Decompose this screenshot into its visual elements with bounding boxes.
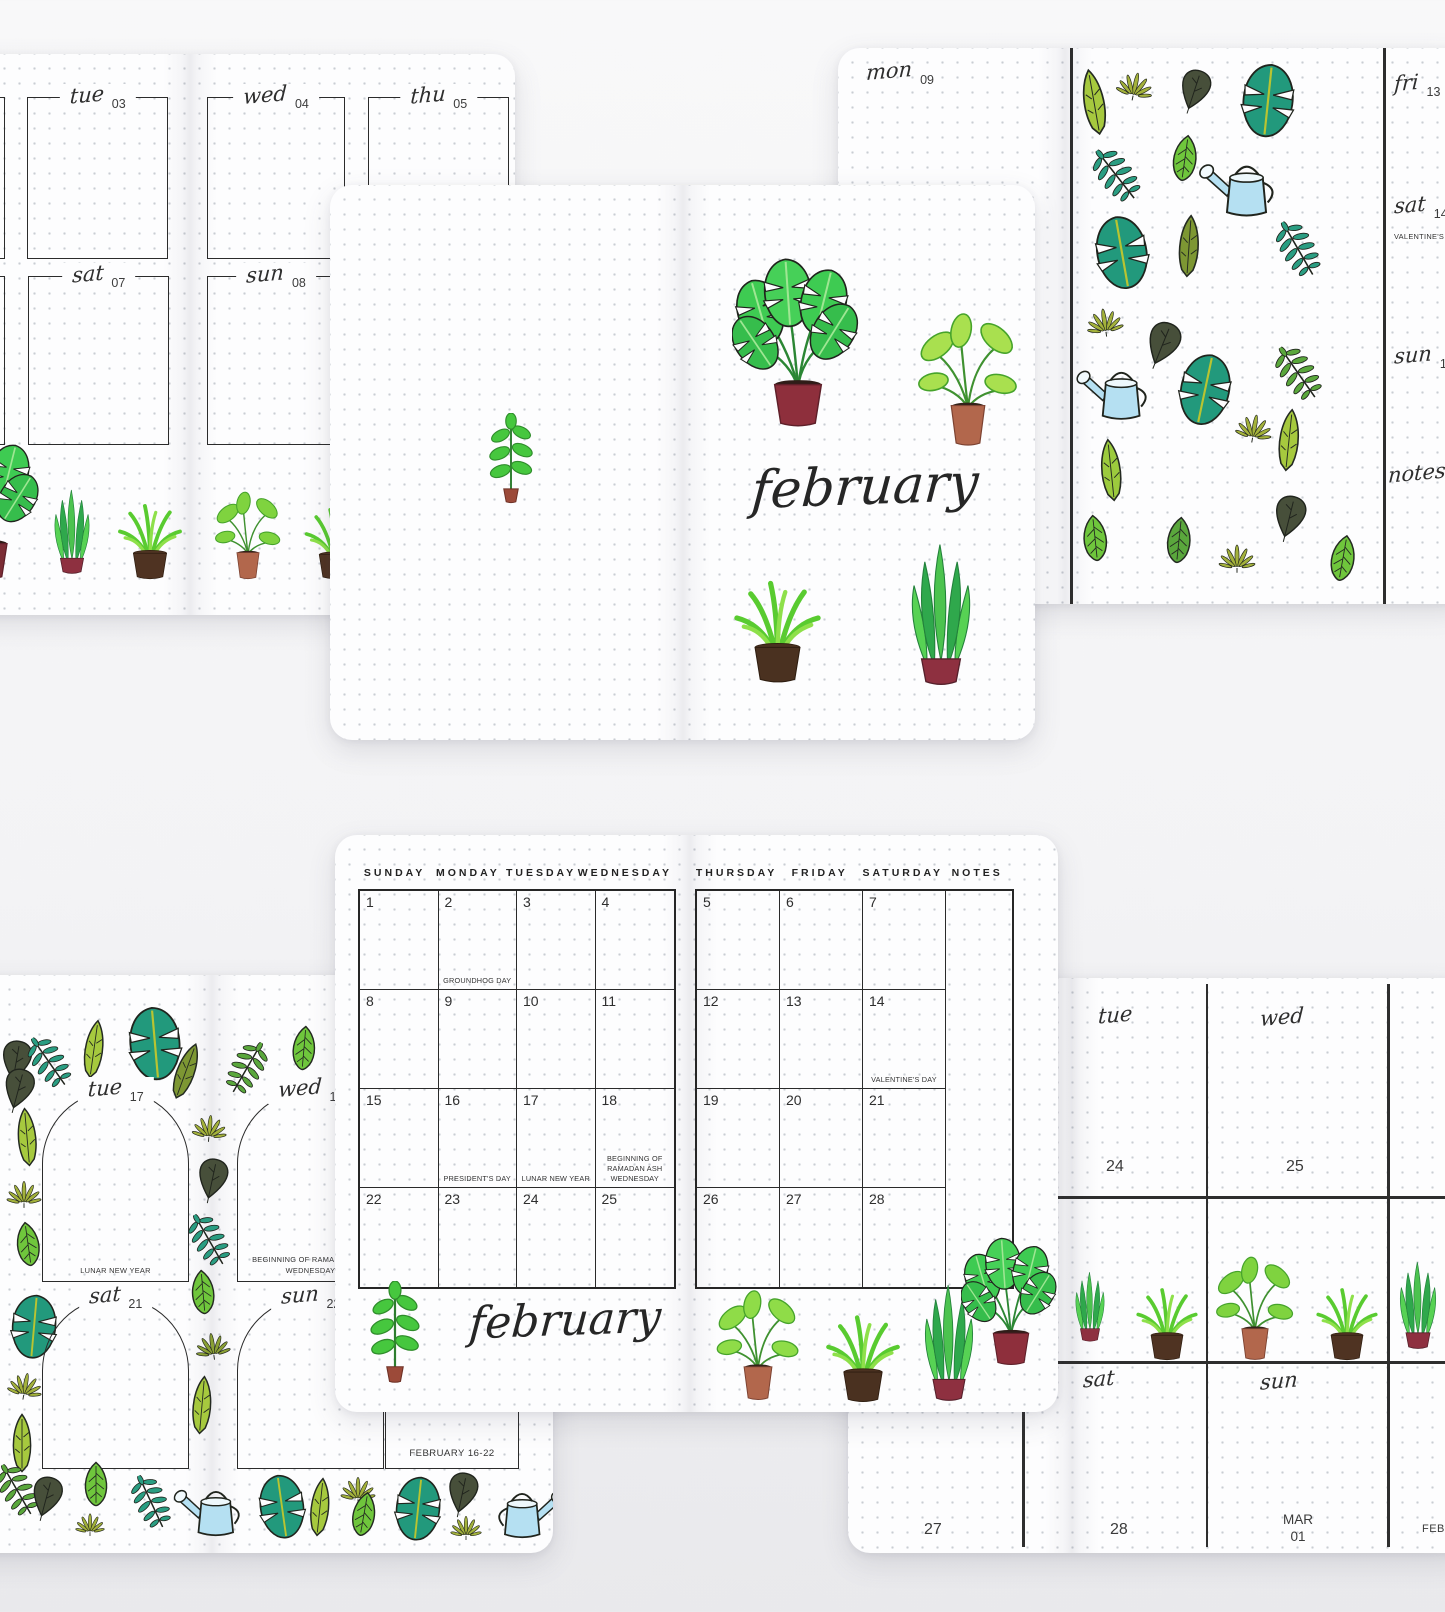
day-label: sat 21 (79, 1284, 153, 1311)
day-box-sat-07: sat 07 (28, 276, 169, 445)
calendar-cell: 13 (780, 990, 863, 1089)
sticker-strip-left-border (1070, 48, 1073, 604)
day-box-partial (0, 276, 5, 445)
calendar-cell: 6 (780, 891, 863, 990)
day-number: 15 (1440, 344, 1445, 371)
weekday-header: SATURDAY (861, 867, 944, 879)
potted-leafy-plant-icon (1204, 1244, 1306, 1361)
simple-leaf-sticker-icon (1076, 512, 1115, 563)
plant-sprig-icon (480, 413, 542, 505)
calendar-cell: 8 (360, 990, 439, 1089)
date-number: 9 (445, 993, 453, 1009)
day-number: 09 (920, 60, 934, 87)
date-number: 7 (869, 894, 877, 910)
day-number: 13 (1427, 72, 1441, 99)
calendar-cell: 26 (697, 1188, 780, 1287)
day-number: 04 (295, 84, 309, 111)
weekday-header: TUESDAY (504, 867, 577, 879)
day-label: tue 17 (77, 1077, 153, 1104)
banana-leaf-sticker-icon (1172, 213, 1206, 279)
calendar-cell: 19 (697, 1089, 780, 1188)
potted-leafy-plant-icon (208, 481, 288, 580)
calendar-cell: 17LUNAR NEW YEAR (517, 1089, 596, 1188)
date-number: 12 (703, 993, 719, 1009)
calendar-cell: 15 (360, 1089, 439, 1188)
calendar-cell: 16PRESIDENT'S DAY (439, 1089, 518, 1188)
date-number: 24 (523, 1191, 539, 1207)
date-number: 10 (523, 993, 539, 1009)
notes-label: notes (1388, 462, 1445, 484)
potted-grass-plant-icon (821, 1291, 905, 1403)
page-fold (656, 185, 710, 740)
calendar-cell: 11 (596, 990, 675, 1089)
calendar-date-columns: 5 6 7 12 13 14VALENTINE'S DAY 19 20 21 2… (697, 891, 946, 1287)
calendar-cell: 9 (439, 990, 518, 1089)
day-name: sat (71, 262, 104, 287)
date-number: 4 (602, 894, 610, 910)
date-number: 26 (703, 1191, 719, 1207)
holiday-label: GROUNDHOG DAY (441, 976, 515, 986)
day-name: tue (87, 1075, 122, 1100)
day-name: sun (1393, 342, 1432, 373)
date-number: 5 (703, 894, 711, 910)
weekday-header: WEDNESDAY (578, 867, 672, 879)
date-number: 25 (602, 1191, 618, 1207)
day-label-sat: sat (1083, 1368, 1115, 1390)
simple-leaf-icon (185, 1268, 221, 1317)
banana-leaf-icon (185, 1374, 218, 1436)
day-name: sat (1393, 193, 1426, 223)
date-number: 18 (602, 1092, 618, 1108)
day-name: sun (280, 1282, 319, 1307)
day-label: thu 05 (400, 84, 477, 111)
day-name: tue (69, 82, 104, 107)
potted-grass-plant-icon (1310, 1268, 1384, 1361)
date-number-mar-01: MAR 01 (1278, 1512, 1318, 1546)
day-box-partial (0, 97, 5, 259)
weekday-header: FRIDAY (778, 867, 861, 879)
date-number-25: 25 (1286, 1158, 1304, 1176)
day-number: 07 (111, 263, 125, 290)
day-arch-tue-17: tue 17 LUNAR NEW YEAR (42, 1090, 189, 1282)
weekday-header: SUNDAY (358, 867, 431, 879)
calendar-cell: 12 (697, 990, 780, 1089)
holiday-label: LUNAR NEW YEAR (519, 1174, 593, 1184)
potted-leafy-plant-icon (713, 1275, 803, 1403)
planner-spread-monthly-calendar: SUNDAY MONDAY TUESDAY WEDNESDAY 1 2GROUN… (335, 835, 1058, 1412)
date-number: 1 (366, 894, 374, 910)
calendar-cell: 10 (517, 990, 596, 1089)
notes-script: notes (1388, 459, 1445, 486)
holiday-label: BEGINNING OF RAMADAN ASH WEDNESDAY (598, 1154, 673, 1184)
day-name: thu (409, 82, 446, 107)
date-number: 11 (602, 993, 617, 1009)
day-box-sun-08: sun 08 (207, 276, 345, 445)
potted-snake-plant-icon (1066, 1244, 1114, 1360)
date-number: 14 (869, 993, 885, 1009)
potted-snake-plant-icon (43, 472, 101, 580)
weekday-header: MONDAY (431, 867, 504, 879)
day-label-fri-13: fri 13 (1394, 72, 1440, 99)
potted-monstera-icon (961, 1197, 1058, 1405)
hemp-leaf-icon (184, 1103, 235, 1145)
sticker-strip-right-border (1383, 48, 1386, 604)
weekday-header: THURSDAY (695, 867, 778, 879)
hemp-leaf-icon (444, 1507, 488, 1541)
date-number: 2 (445, 894, 453, 910)
potted-snake-plant-icon (1388, 1238, 1445, 1361)
watering-can-icon (168, 1479, 252, 1541)
date-number: 19 (703, 1092, 719, 1108)
potted-snake-plant-icon (892, 523, 990, 687)
weekday-headers-left: SUNDAY MONDAY TUESDAY WEDNESDAY (358, 867, 672, 879)
date-number: 15 (366, 1092, 382, 1108)
day-name: wed (243, 82, 288, 108)
day-label: tue 03 (59, 84, 135, 111)
day-box-tue-03: tue 03 (27, 97, 168, 259)
calendar-cell: 14VALENTINE'S DAY (863, 990, 946, 1089)
day-number: 21 (128, 1284, 142, 1311)
day-number: 05 (453, 84, 467, 111)
watering-can-sticker-icon (1194, 152, 1286, 222)
day-name: sat (88, 1283, 121, 1308)
calendar-cell: 23 (439, 1188, 518, 1287)
planner-spread-february-cover: february (330, 185, 1035, 740)
day-number: 03 (112, 84, 126, 111)
calendar-cell: 4 (596, 891, 675, 990)
potted-grass-plant-icon (1130, 1268, 1204, 1361)
plant-sprig-icon (357, 1281, 433, 1385)
date-number: 16 (445, 1092, 461, 1108)
holiday-label: LUNAR NEW YEAR (47, 1266, 184, 1276)
date-number: 13 (786, 993, 802, 1009)
day-name: fri (1393, 71, 1419, 100)
date-number: 23 (445, 1191, 461, 1207)
day-label: wed 04 (233, 84, 319, 111)
date-number: 20 (786, 1092, 802, 1108)
calendar-cell: 1 (360, 891, 439, 990)
calendar-cell: 24 (517, 1188, 596, 1287)
simple-leaf-sticker-icon (1160, 514, 1199, 565)
calendar-cell: 5 (697, 891, 780, 990)
calendar-cell: 2GROUNDHOG DAY (439, 891, 518, 990)
holiday-label: VALENTINE'S DAY (1394, 232, 1445, 242)
week-range-label-partial: FEB (1422, 1523, 1445, 1535)
day-label-mon-09: mon 09 (866, 60, 934, 87)
day-name: wed (1260, 1004, 1305, 1030)
day-number: 08 (292, 263, 306, 290)
day-name: tue (1097, 1002, 1132, 1027)
day-name: wed (277, 1075, 322, 1101)
date-number: 27 (786, 1191, 802, 1207)
watering-can-sticker-icon (1071, 359, 1159, 425)
potted-monstera-icon (732, 233, 864, 451)
holiday-label: PRESIDENT'S DAY (441, 1174, 515, 1184)
date-number: 28 (869, 1191, 885, 1207)
calendar-cell: 27 (780, 1188, 863, 1287)
date-number: 8 (366, 993, 374, 1009)
simple-leaf-icon (286, 1024, 322, 1073)
hemp-leaf-icon (70, 1505, 110, 1537)
date-number: 22 (366, 1191, 382, 1207)
hemp-leaf-icon (186, 1320, 239, 1364)
date-number: 3 (523, 894, 531, 910)
calendar-grid-left: 1 2GROUNDHOG DAY 3 4 8 9 10 11 15 16PRES… (358, 889, 676, 1289)
date-number: 6 (786, 894, 794, 910)
weekday-headers-right: THURSDAY FRIDAY SATURDAY NOTES (695, 867, 1010, 879)
monstera-leaf-sticker-icon (1234, 59, 1302, 143)
date-number: 21 (869, 1092, 885, 1108)
day-number: 14 (1434, 194, 1445, 221)
calendar-cell: 25 (596, 1188, 675, 1287)
hemp-leaf-sticker-icon (1212, 534, 1262, 574)
date-number-27: 27 (924, 1521, 942, 1539)
day-label-sun-15: sun 15 (1394, 344, 1445, 371)
date-number-24: 24 (1106, 1158, 1124, 1176)
date-number: 17 (523, 1092, 539, 1108)
day-arch-sat-21: sat 21 (42, 1297, 189, 1469)
day-label: sun 08 (236, 263, 316, 290)
calendar-cell: 3 (517, 891, 596, 990)
hemp-leaf-icon (0, 1171, 48, 1209)
day-label-wed: wed (1260, 1006, 1304, 1028)
day-label-sat-14: sat 14 (1394, 194, 1445, 221)
monstera-leaf-icon (389, 1472, 448, 1545)
day-name: sun (1259, 1368, 1298, 1393)
calendar-cell: 18BEGINNING OF RAMADAN ASH WEDNESDAY (596, 1089, 675, 1188)
weekday-header: NOTES (944, 867, 1010, 879)
day-number: 17 (130, 1077, 144, 1104)
day-label: sat 07 (62, 263, 136, 290)
day-name: mon (865, 58, 912, 89)
day-label-sun: sun (1260, 1370, 1298, 1392)
day-box-wed-04: wed 04 (207, 97, 345, 259)
calendar-cell: 20 (780, 1089, 863, 1188)
potted-grass-plant-icon (111, 483, 189, 580)
calendar-cell: 21 (863, 1089, 946, 1188)
simple-leaf-icon (80, 1461, 112, 1507)
day-label-tue: tue (1098, 1004, 1132, 1026)
potted-leafy-plant-icon (905, 297, 1031, 447)
day-name: sun (246, 261, 285, 286)
watering-can-icon (486, 1481, 553, 1543)
calendar-cell: 22 (360, 1188, 439, 1287)
week-range-label: FEBRUARY 16-22 (390, 1447, 514, 1460)
calendar-cell: 7 (863, 891, 946, 990)
day-name: sat (1082, 1367, 1115, 1392)
hemp-leaf-sticker-icon (1075, 295, 1132, 342)
potted-grass-plant-icon (730, 543, 825, 693)
banana-leaf-icon (10, 1106, 43, 1168)
date-number-28: 28 (1110, 1521, 1128, 1539)
desk-background: tue 03 wed 04 thu 05 sat 07 sun (0, 0, 1445, 1612)
holiday-label: VALENTINE'S DAY (865, 1075, 943, 1085)
